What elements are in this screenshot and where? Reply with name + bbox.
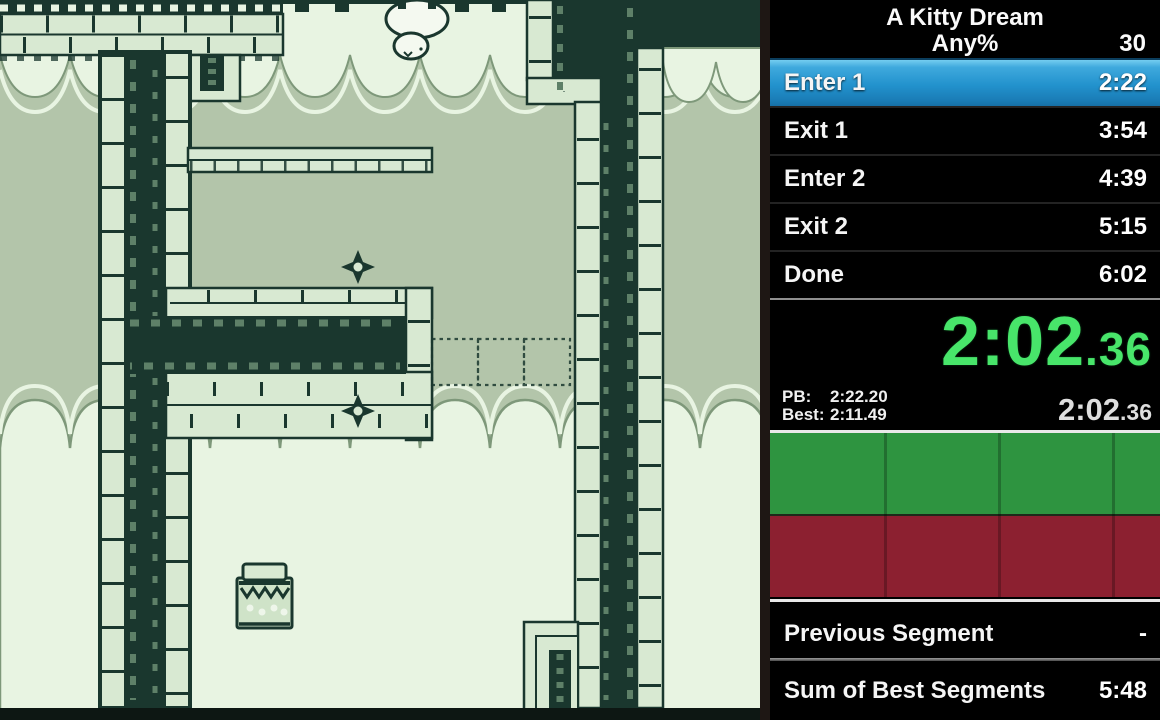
jar-item <box>237 564 292 628</box>
sub-timer-value: 2:02 <box>1058 392 1120 427</box>
segment-row: Exit 1 3:54 <box>770 106 1160 154</box>
segment-name: Exit 1 <box>784 117 848 145</box>
segment-list: Enter 1 2:22 Exit 1 3:54 Enter 2 4:39 Ex… <box>770 58 1160 298</box>
segment-row: Exit 2 5:15 <box>770 202 1160 250</box>
sum-of-best-label: Sum of Best Segments <box>784 677 1045 705</box>
cave-structure <box>124 288 432 440</box>
sum-of-best-value: 5:48 <box>1099 677 1147 705</box>
timer-panel[interactable]: A Kitty Dream Any% 30 Enter 1 2:22 Exit … <box>770 0 1160 720</box>
attempt-count: 30 <box>1119 30 1146 58</box>
screen: A Kitty Dream Any% 30 Enter 1 2:22 Exit … <box>0 0 1160 720</box>
comparison-block: PB: 2:22.20 Best: 2:11.49 <box>782 388 888 424</box>
sum-of-best-row: Sum of Best Segments 5:48 <box>770 661 1160 720</box>
pb-row: PB: 2:22.20 <box>782 388 888 406</box>
sub-timer: 2:02.36 <box>1058 392 1152 428</box>
graph-ahead-band <box>770 433 1160 516</box>
bottom-edge <box>0 708 770 720</box>
previous-segment-row: Previous Segment - <box>770 610 1160 658</box>
segment-row: Enter 2 4:39 <box>770 154 1160 202</box>
graph-divider <box>1112 433 1115 599</box>
previous-segment-value: - <box>1139 620 1147 648</box>
best-value: 2:11.49 <box>830 406 887 424</box>
graph-divider <box>884 433 887 599</box>
segment-time: 6:02 <box>1099 261 1147 289</box>
segment-name: Enter 1 <box>784 69 865 97</box>
info-rows: Previous Segment - Sum of Best Segments … <box>770 602 1160 720</box>
platform <box>188 148 432 172</box>
bottom-tower <box>524 622 578 710</box>
segment-name: Done <box>784 261 844 289</box>
segment-name: Exit 2 <box>784 213 848 241</box>
pb-label: PB: <box>782 388 830 406</box>
right-edge <box>760 0 770 720</box>
best-label: Best: <box>782 406 830 424</box>
game-canvas <box>0 0 770 720</box>
game-viewport[interactable] <box>0 0 770 720</box>
graph-divider <box>998 433 1001 599</box>
spacer <box>770 602 1160 610</box>
run-title: A Kitty Dream <box>770 4 1160 31</box>
segment-time: 3:54 <box>1099 117 1147 145</box>
main-timer-fraction: .36 <box>1085 323 1152 375</box>
split-graph <box>770 430 1160 602</box>
segment-time: 2:22 <box>1099 69 1147 97</box>
graph-behind-band <box>770 516 1160 597</box>
run-category: Any% <box>770 31 1160 57</box>
run-title-block: A Kitty Dream Any% 30 <box>770 0 1160 58</box>
segment-name: Enter 2 <box>784 165 865 193</box>
pb-value: 2:22.20 <box>830 388 888 406</box>
segment-time: 4:39 <box>1099 165 1147 193</box>
segment-row: Done 6:02 <box>770 250 1160 298</box>
segment-row-current: Enter 1 2:22 <box>770 58 1160 106</box>
timer-block: 2:02.36 PB: 2:22.20 Best: 2:11.49 2:02.3… <box>770 300 1160 430</box>
main-timer-value: 2:02 <box>941 302 1085 380</box>
segment-time: 5:15 <box>1099 213 1147 241</box>
main-timer: 2:02.36 <box>941 302 1152 380</box>
previous-segment-label: Previous Segment <box>784 620 993 648</box>
best-row: Best: 2:11.49 <box>782 406 888 424</box>
sub-timer-fraction: .36 <box>1120 399 1152 425</box>
